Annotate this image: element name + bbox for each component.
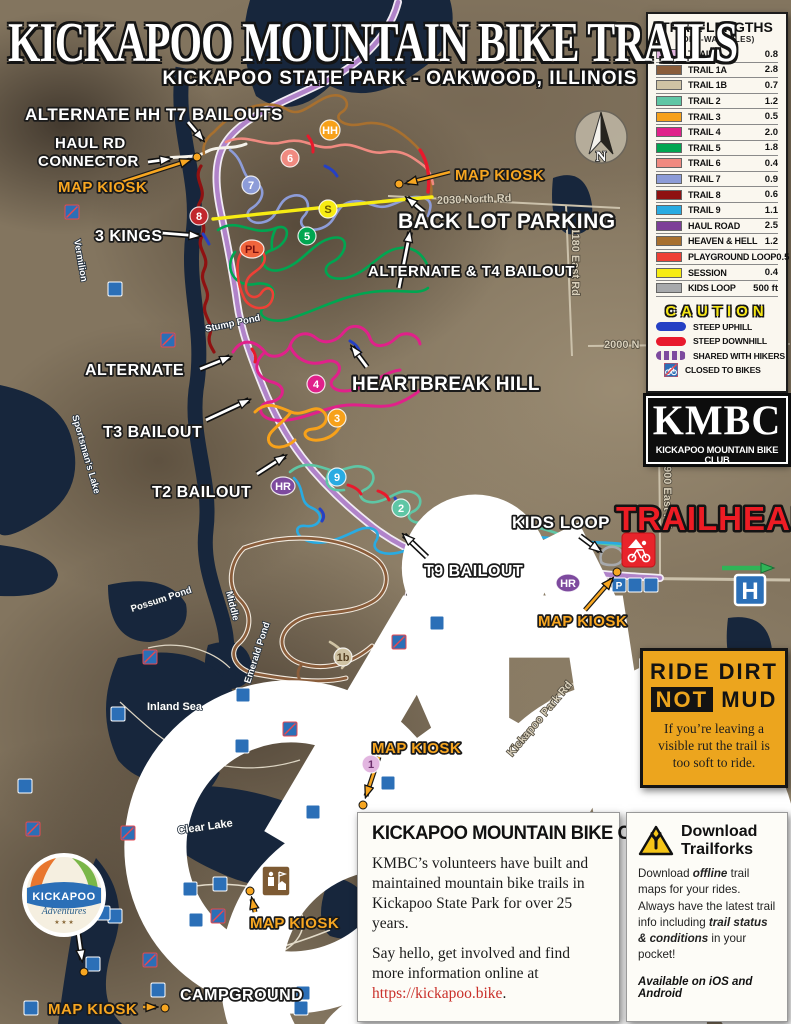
legend-row: KIDS LOOP500 ft xyxy=(656,281,778,297)
trailforks-title: Download Trailforks xyxy=(681,823,757,858)
trail-color-swatch xyxy=(656,190,682,200)
trail-color-swatch xyxy=(656,236,682,246)
badge-hr: HR xyxy=(271,477,295,495)
legend-row: HAUL ROAD2.5 xyxy=(656,219,778,235)
club-heading: KICKAPOO MOUNTAIN BIKE CLUB xyxy=(372,823,598,845)
callout-haul-rd-line1: HAUL RD xyxy=(55,135,126,152)
club-website-link[interactable]: https://kickapoo.bike xyxy=(372,985,502,1002)
svg-text:2: 2 xyxy=(398,503,404,515)
legend-row: TRAIL 1B0.7 xyxy=(656,78,778,94)
svg-text:HR: HR xyxy=(560,578,576,590)
shared-with-hikers-swatch xyxy=(656,351,686,360)
caution-row: STEEP UPHILL xyxy=(656,320,778,335)
ride-dirt-line: RIDE DIRT xyxy=(643,659,785,685)
vermilion-river-label: Vermilion xyxy=(71,239,89,283)
club-info-box: KICKAPOO MOUNTAIN BIKE CLUB KMBC’s volun… xyxy=(357,812,620,1022)
badge-6: 6 xyxy=(281,149,299,167)
svg-text:5: 5 xyxy=(304,231,310,243)
road-1180-east: 1180 East Rd xyxy=(569,228,581,296)
callout-t9-bailout: T9 BAILOUT xyxy=(424,563,523,580)
callout-campground: CAMPGROUND xyxy=(180,987,303,1004)
callout-kids-loop: KIDS LOOP xyxy=(512,513,610,532)
svg-text:S: S xyxy=(324,204,331,216)
badge-pl: PL xyxy=(240,240,264,258)
mud-word: MUD xyxy=(721,687,777,712)
legend-row: TRAIL 42.0 xyxy=(656,125,778,141)
compass: N xyxy=(575,111,627,165)
trail-color-swatch xyxy=(656,158,682,168)
callout-3-kings: 3 KINGS xyxy=(95,228,163,245)
callout-map-kiosk: MAP KIOSK xyxy=(372,740,461,757)
callout-t2-bailout: T2 BAILOUT xyxy=(152,484,251,501)
trailforks-icon xyxy=(638,825,674,857)
callout-alt-hh-t7: ALTERNATE HH T7 BAILOUTS xyxy=(25,105,283,124)
kids-loop-trail xyxy=(601,547,624,565)
callout-heartbreak-hill: HEARTBREAK HILL xyxy=(352,374,540,395)
caution-row: CLOSED TO BIKES xyxy=(656,363,778,378)
trail-color-swatch xyxy=(656,174,682,184)
svg-text:9: 9 xyxy=(334,472,340,484)
trail-color-swatch xyxy=(656,127,682,137)
svg-text:3: 3 xyxy=(334,413,340,425)
steep-uphill-swatch xyxy=(656,322,686,331)
road-2000-n: 2000 N xyxy=(604,339,640,351)
svg-text:6: 6 xyxy=(287,153,293,165)
kickapoo-adventures-logo: KICKAPOO Adventures ★ ★ ★ xyxy=(22,853,106,937)
badge-2: 2 xyxy=(392,499,410,517)
legend-row: TRAIL 70.9 xyxy=(656,172,778,188)
trailhead-sign xyxy=(622,533,655,567)
svg-text:PL: PL xyxy=(245,244,259,256)
ride-dirt-body: If you’re leaving a visible rut the trai… xyxy=(652,721,776,772)
club-paragraph-2: Say hello, get involved and find more in… xyxy=(372,944,605,1004)
badge-s: S xyxy=(319,200,337,218)
trailforks-footnote: Available on iOS and Android xyxy=(638,976,776,1000)
trail-map-poster: P H N xyxy=(0,0,791,1024)
club-paragraph-1: KMBC’s volunteers have built and maintai… xyxy=(372,854,605,935)
ride-dirt-not-mud-sign: RIDE DIRT NOT MUD If you’re leaving a vi… xyxy=(640,648,788,788)
logo-script: Adventures xyxy=(41,906,87,917)
svg-text:HH: HH xyxy=(322,125,338,137)
legend-row: TRAIL 91.1 xyxy=(656,203,778,219)
svg-text:7: 7 xyxy=(248,180,254,192)
kmbc-full-name: KICKAPOO MOUNTAIN BIKE CLUB xyxy=(648,445,786,465)
badge-7: 7 xyxy=(242,176,260,194)
callout-map-kiosk: MAP KIOSK xyxy=(48,1001,137,1018)
parking-icon: P xyxy=(612,578,626,592)
svg-text:4: 4 xyxy=(313,379,320,391)
legend-row: PLAYGROUND LOOP0.5 xyxy=(656,250,778,266)
trail-color-swatch xyxy=(656,112,682,122)
svg-text:H: H xyxy=(741,578,758,605)
callout-back-lot-parking: BACK LOT PARKING xyxy=(398,210,616,233)
trailforks-header: Download Trailforks xyxy=(638,823,776,858)
inland-sea-label: Inland Sea xyxy=(147,701,203,713)
not-mud-line: NOT MUD xyxy=(643,687,785,713)
hospital-sign: H xyxy=(735,575,765,605)
callout-map-kiosk: MAP KIOSK xyxy=(455,167,544,184)
callout-alternate: ALTERNATE xyxy=(85,362,184,379)
trailforks-box: Download Trailforks Download offline tra… xyxy=(626,812,788,1022)
logo-stars: ★ ★ ★ xyxy=(54,919,73,926)
trail-color-swatch xyxy=(656,80,682,90)
svg-text:P: P xyxy=(616,581,623,592)
trailforks-body: Download offline trail maps for your rid… xyxy=(638,866,776,963)
badge-1: 1 xyxy=(362,755,380,773)
svg-text:1: 1 xyxy=(368,759,374,771)
callout-trailhead: TRAILHEAD xyxy=(616,500,791,537)
badge-5: 5 xyxy=(298,227,316,245)
svg-text:HR: HR xyxy=(275,481,291,493)
caution-row: SHARED WITH HIKERS xyxy=(656,349,778,364)
legend-row: TRAIL 30.5 xyxy=(656,109,778,125)
kmbc-logo-box: KMBC KICKAPOO MOUNTAIN BIKE CLUB xyxy=(646,396,788,464)
badge-1b: 1b xyxy=(334,648,352,666)
legend-row: TRAIL 60.4 xyxy=(656,156,778,172)
trail-3-path xyxy=(255,405,342,447)
trail-color-swatch xyxy=(656,143,682,153)
callout-map-kiosk: MAP KIOSK xyxy=(538,613,627,630)
trail-6-path xyxy=(226,139,433,184)
legend-row: TRAIL 21.2 xyxy=(656,94,778,110)
road-2030-north: 2030 North Rd xyxy=(437,192,512,207)
trail-color-swatch xyxy=(656,283,682,293)
trail-color-swatch xyxy=(656,268,682,278)
closed-to-bikes-icon xyxy=(664,363,678,377)
badge-4: 4 xyxy=(307,375,325,393)
caution-row: STEEP DOWNHILL xyxy=(656,334,778,349)
badge-hh: HH xyxy=(320,120,340,140)
poster-title: KICKAPOO MOUNTAIN BIKE TRAILS xyxy=(8,10,616,75)
callout-alt-t4-bailout: ALTERNATE & T4 BAILOUT xyxy=(368,263,575,280)
callout-map-kiosk: MAP KIOSK xyxy=(250,915,339,932)
callout-haul-rd-line2: CONNECTOR xyxy=(38,153,139,170)
callout-map-kiosk: MAP KIOSK xyxy=(58,179,147,196)
callout-t3-bailout: T3 BAILOUT xyxy=(103,424,202,441)
svg-text:1b: 1b xyxy=(337,652,350,664)
poster-subtitle: KICKAPOO STATE PARK - OAKWOOD, ILLINOIS xyxy=(150,68,650,90)
legend-row: HEAVEN & HELL1.2 xyxy=(656,234,778,250)
not-word: NOT xyxy=(651,687,713,712)
svg-text:8: 8 xyxy=(196,211,202,223)
logo-name: KICKAPOO xyxy=(32,891,95,903)
badge-3: 3 xyxy=(328,409,346,427)
trail-color-swatch xyxy=(656,96,682,106)
legend-row: SESSION0.4 xyxy=(656,265,778,281)
legend-row: TRAIL 51.8 xyxy=(656,141,778,157)
kmbc-abbr: KMBC xyxy=(648,397,786,445)
caution-title: CAUTION xyxy=(656,303,778,320)
trail-color-swatch xyxy=(656,221,682,231)
compass-north-label: N xyxy=(596,149,607,165)
badge-8: 8 xyxy=(190,207,208,225)
badge-hr: HR xyxy=(556,574,580,592)
legend-row: TRAIL 80.6 xyxy=(656,187,778,203)
stump-pond-label: Stump Pond xyxy=(204,313,261,335)
steep-downhill-swatch xyxy=(656,337,686,346)
trail-color-swatch xyxy=(656,252,682,262)
trail-color-swatch xyxy=(656,205,682,215)
badge-9: 9 xyxy=(328,468,346,486)
ranger-station-sign xyxy=(262,866,290,896)
